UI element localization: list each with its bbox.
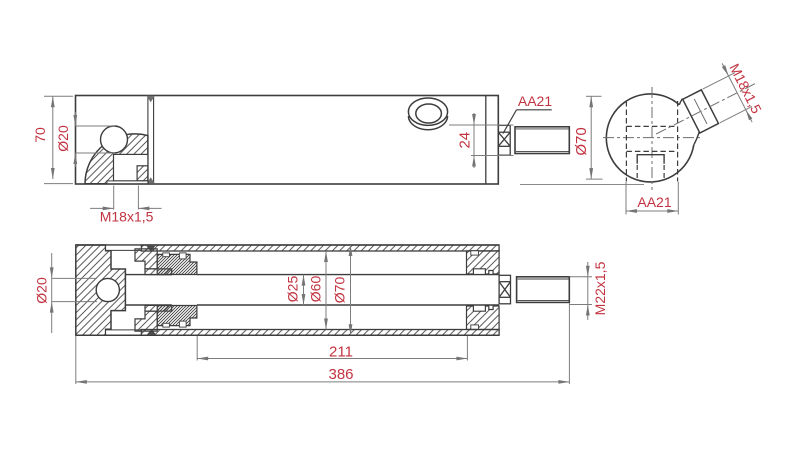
svg-text:Ø70: Ø70 <box>331 277 347 304</box>
svg-text:70: 70 <box>32 127 48 143</box>
svg-text:Ø20: Ø20 <box>55 125 71 152</box>
svg-text:M22x1,5: M22x1,5 <box>592 261 608 315</box>
svg-text:24: 24 <box>457 132 474 149</box>
svg-text:Ø25: Ø25 <box>285 276 301 303</box>
svg-text:386: 386 <box>328 366 353 383</box>
svg-text:AA21: AA21 <box>637 194 671 210</box>
svg-text:Ø20: Ø20 <box>34 277 50 304</box>
svg-text:M18x1,5: M18x1,5 <box>100 209 154 225</box>
svg-text:211: 211 <box>329 344 353 361</box>
svg-text:Ø70: Ø70 <box>573 127 590 155</box>
svg-text:Ø60: Ø60 <box>308 276 324 303</box>
svg-text:AA21: AA21 <box>518 93 552 109</box>
